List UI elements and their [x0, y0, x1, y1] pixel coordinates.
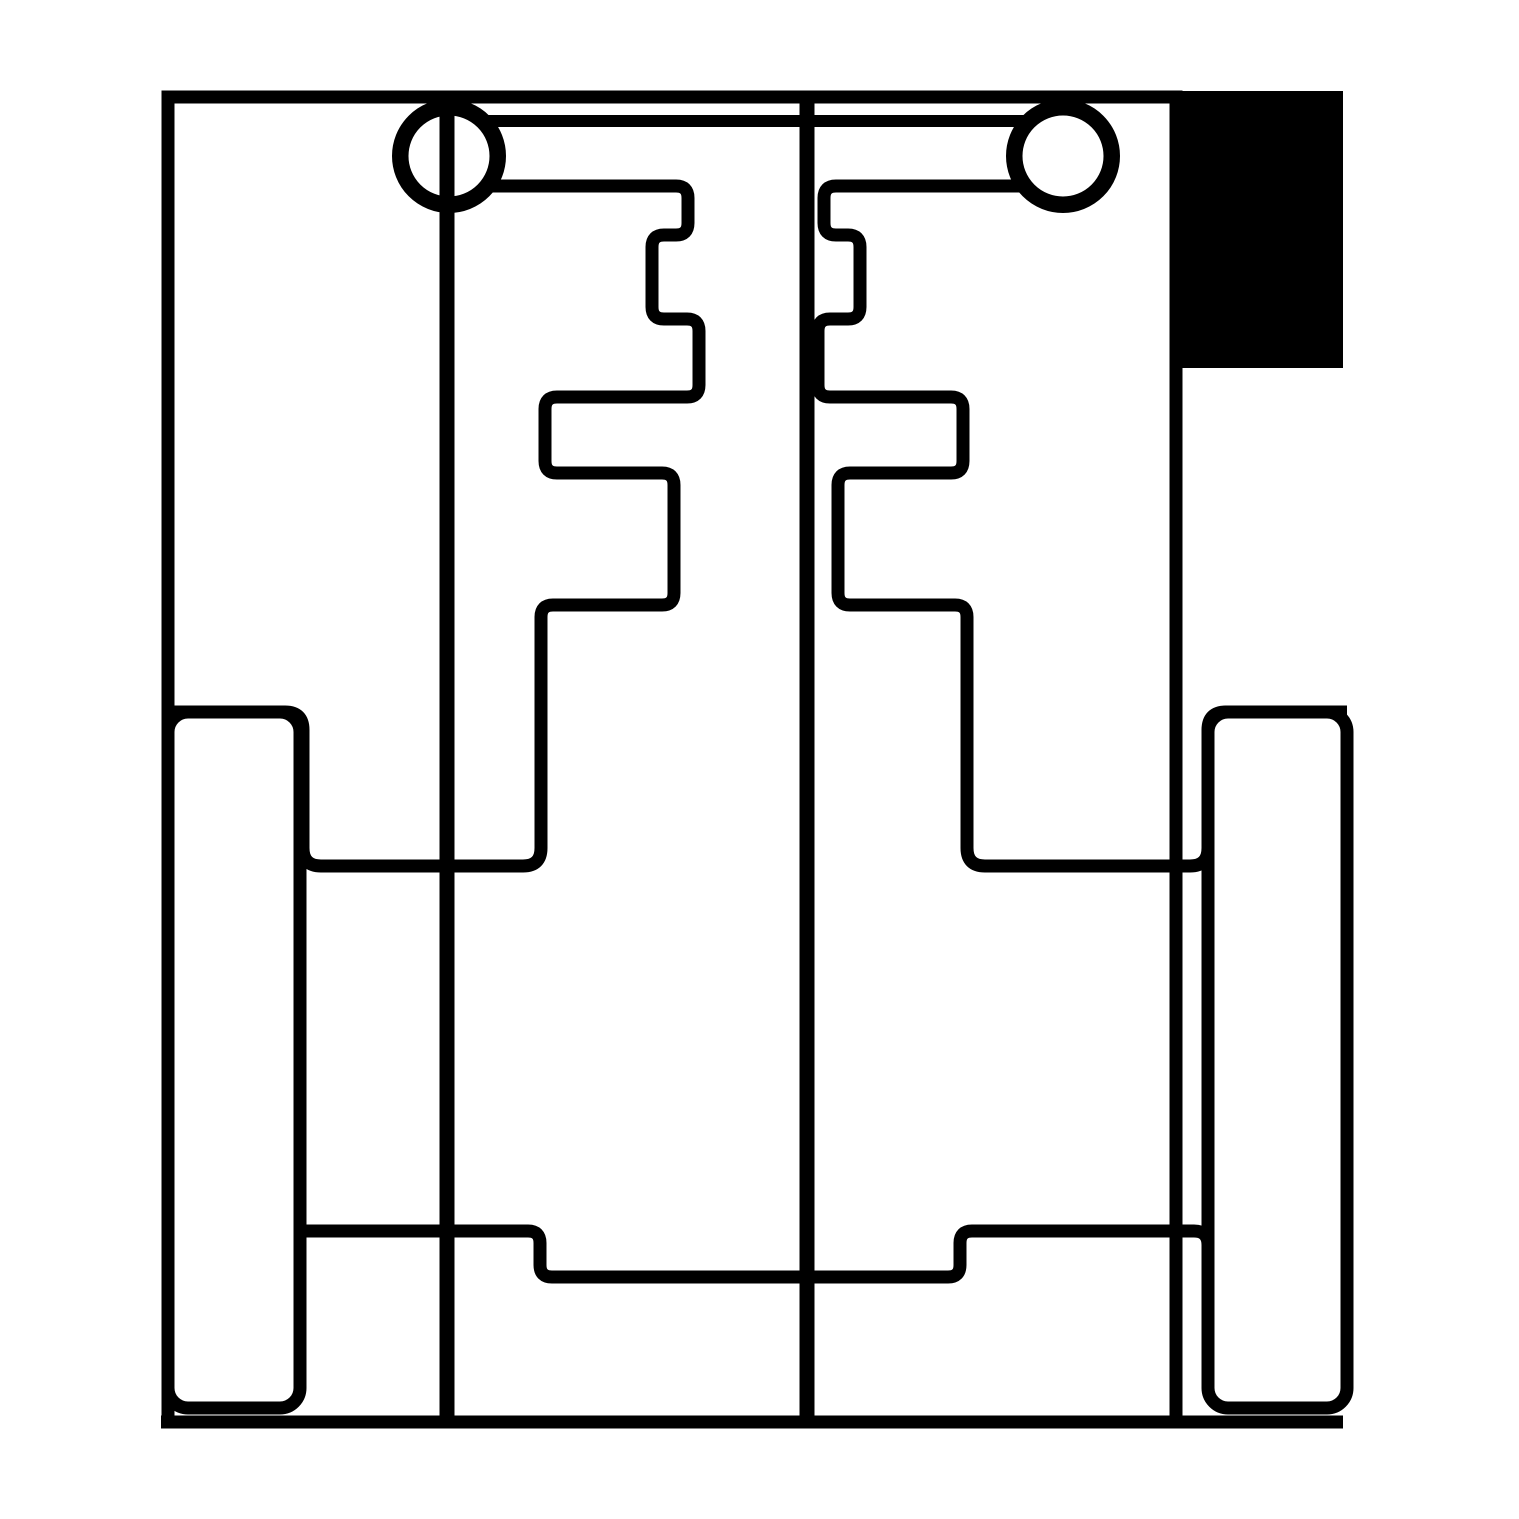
corner-block-filled — [1170, 91, 1343, 368]
technical-line-drawing — [0, 0, 1519, 1519]
outer-frame — [161, 97, 1343, 1422]
comb-path-left — [168, 186, 699, 866]
bottom-step-line — [303, 1231, 1208, 1277]
drawing-canvas — [0, 0, 1519, 1519]
wheel-right-ring — [1013, 106, 1113, 206]
wheel-right-inner-ring — [1021, 114, 1105, 198]
side-pill-left — [168, 712, 300, 1408]
side-pill-right — [1208, 712, 1347, 1408]
